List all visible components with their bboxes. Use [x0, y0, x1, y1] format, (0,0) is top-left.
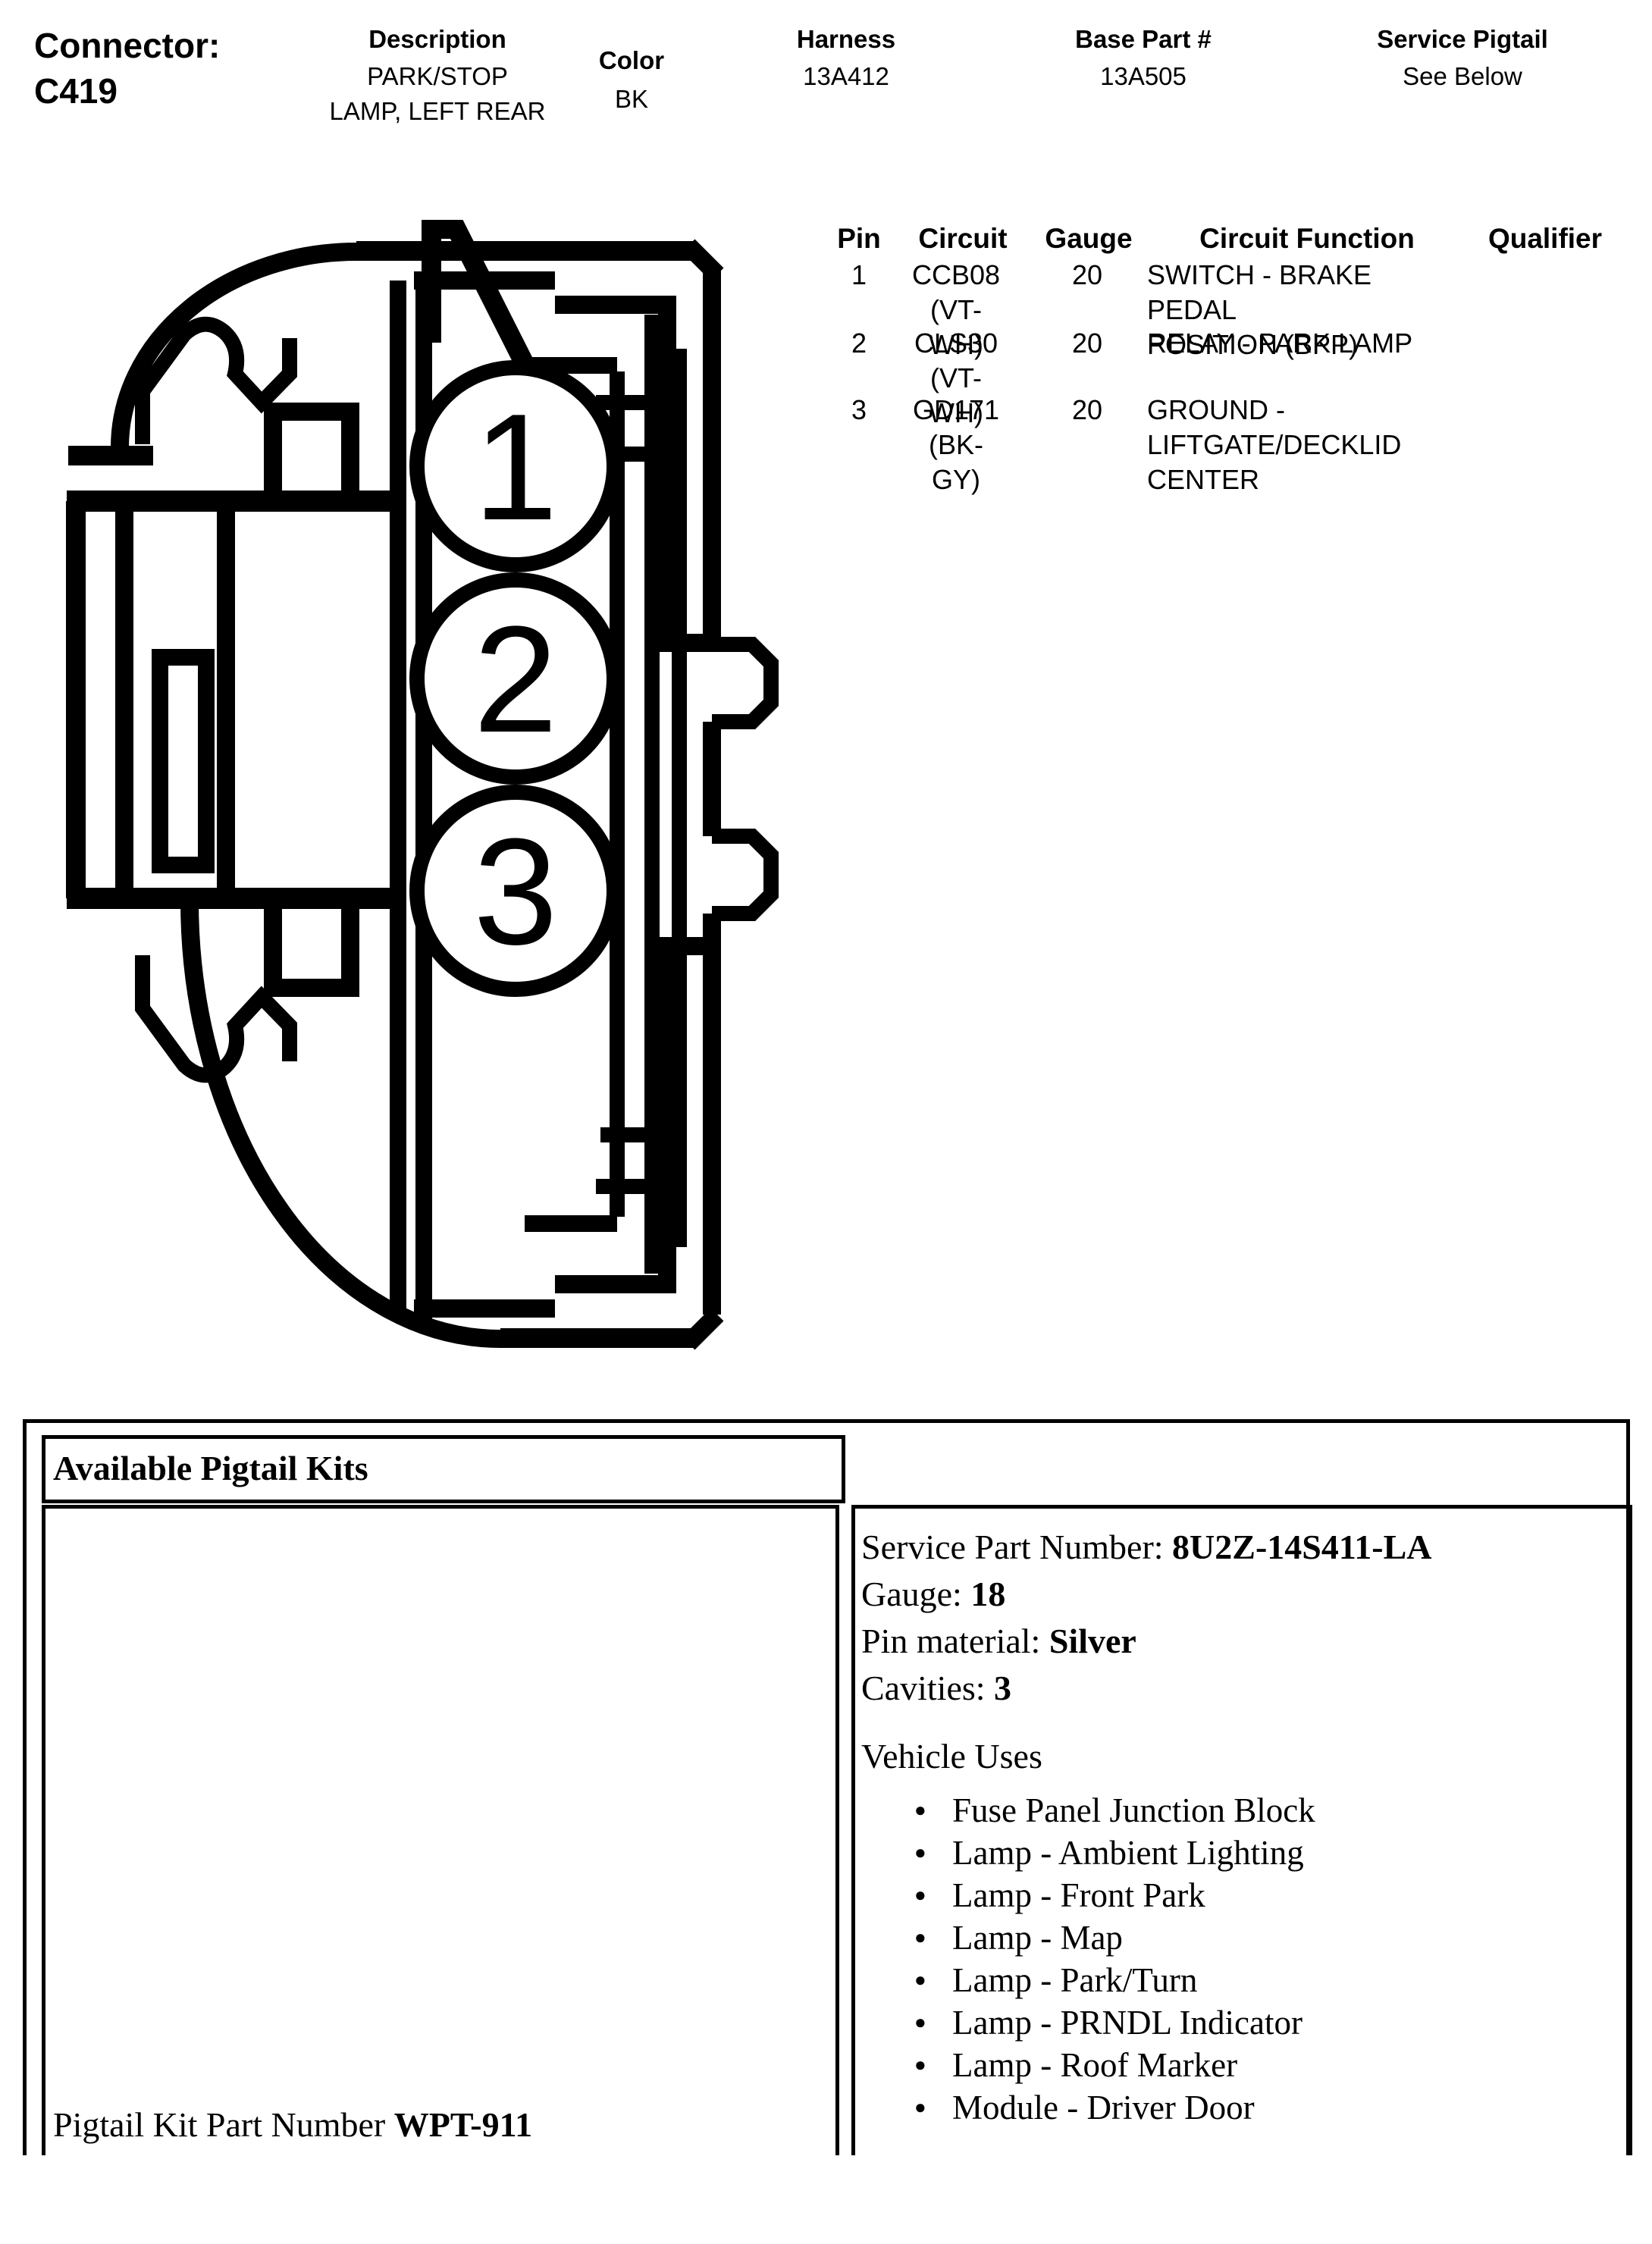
base-slot — [160, 657, 206, 865]
vehicle-uses-list: Fuse Panel Junction BlockLamp - Ambient … — [855, 1789, 1621, 2129]
pigtail-kit-part-number: WPT-911 — [394, 2105, 532, 2144]
connector-id: C419 — [34, 68, 220, 114]
pin-table-header-gauge: Gauge — [1043, 221, 1134, 256]
pin-table-header-circuit: Circuit — [902, 221, 1023, 256]
inner-hook-bottom — [555, 946, 712, 1284]
col-value-description: PARK/STOP LAMP, LEFT REAR — [301, 59, 574, 129]
col-value-service-pigtail: See Below — [1334, 59, 1591, 94]
vehicle-use-item: Lamp - Map — [855, 1916, 1621, 1959]
service-part-details: Service Part Number: 8U2Z-14S411-LA Gaug… — [861, 1524, 1619, 1712]
col-label-harness: Harness — [732, 24, 960, 55]
pin-table-header-function: Circuit Function — [1178, 221, 1436, 256]
circuit-cell: GD171 (BK- GY) — [893, 393, 1019, 497]
catalog-page: { "header": { "connector_label": "Connec… — [0, 0, 1652, 2244]
detail-service-part-number: Service Part Number: 8U2Z-14S411-LA — [861, 1524, 1619, 1571]
vehicle-uses-label: Vehicle Uses — [861, 1736, 1042, 1776]
pigtail-kit-part-label: Pigtail Kit Part Number — [53, 2105, 394, 2144]
vehicle-use-item: Module - Driver Door — [855, 2086, 1621, 2129]
service-part-cell: Service Part Number: 8U2Z-14S411-LA Gaug… — [851, 1505, 1632, 2155]
pigtail-kit-part-line: Pigtail Kit Part Number WPT-911 — [53, 2105, 532, 2145]
pigtail-kits-title: Available Pigtail Kits — [45, 1439, 842, 1498]
detail-value: 8U2Z-14S411-LA — [1172, 1528, 1431, 1566]
vehicle-use-item: Lamp - PRNDL Indicator — [855, 2001, 1621, 2044]
col-label-service-pigtail: Service Pigtail — [1334, 24, 1591, 55]
detail-value: 18 — [970, 1575, 1005, 1613]
pin-cavity-label-3: 3 — [473, 807, 557, 976]
vehicle-use-item: Lamp - Front Park — [855, 1874, 1621, 1916]
pin-table-header-pin: Pin — [829, 221, 889, 256]
gauge-cell: 20 — [1057, 326, 1118, 361]
detail-cavities: Cavities: 3 — [861, 1665, 1619, 1712]
col-label-description: Description — [301, 24, 574, 55]
gauge-cell: 20 — [1057, 258, 1118, 293]
connector-label: Connector: — [34, 23, 220, 68]
pin-cavity-label-1: 1 — [473, 383, 557, 552]
vehicle-use-item: Fuse Panel Junction Block — [855, 1789, 1621, 1832]
circuit-function-cell: GROUND - LIFTGATE/DECKLID CENTER — [1147, 393, 1435, 497]
pin-number-cell: 1 — [836, 258, 882, 293]
detail-value: Silver — [1049, 1622, 1136, 1660]
col-label-base-part: Base Part # — [1030, 24, 1257, 55]
pin-cavity-label-2: 2 — [473, 595, 557, 764]
detail-value: 3 — [994, 1669, 1011, 1707]
pin-cavities: 1 2 3 — [417, 368, 614, 989]
pigtail-kits-header-box: Available Pigtail Kits — [42, 1435, 845, 1503]
pin-number-cell: 2 — [836, 326, 882, 361]
col-value-harness: 13A412 — [732, 59, 960, 94]
pigtail-kit-cell: Pigtail Kit Part Number WPT-911 — [42, 1505, 839, 2155]
connector-title: Connector: C419 — [34, 23, 220, 114]
lock-tab-2 — [712, 836, 771, 914]
gauge-cell: 20 — [1057, 393, 1118, 428]
circuit-function-cell: RELAY - PARK LAMP — [1147, 326, 1435, 361]
vehicle-use-item: Lamp - Park/Turn — [855, 1959, 1621, 2001]
detail-label: Gauge: — [861, 1575, 970, 1613]
detail-gauge: Gauge: 18 — [861, 1571, 1619, 1618]
col-value-color: BK — [556, 82, 707, 117]
col-value-base-part: 13A505 — [1030, 59, 1257, 94]
vehicle-use-item: Lamp - Roof Marker — [855, 2044, 1621, 2086]
detail-label: Service Part Number: — [861, 1528, 1172, 1566]
connector-face-diagram: 1 2 3 — [53, 220, 819, 1372]
vehicle-use-item: Lamp - Ambient Lighting — [855, 1832, 1621, 1874]
detail-pin-material: Pin material: Silver — [861, 1618, 1619, 1665]
lock-tab-1 — [712, 644, 771, 722]
bottom-right-chamfer — [688, 1315, 717, 1343]
col-label-color: Color — [556, 45, 707, 76]
pin-table-header-qualifier: Qualifier — [1477, 221, 1613, 256]
detail-label: Pin material: — [861, 1622, 1049, 1660]
detail-label: Cavities: — [861, 1669, 994, 1707]
pin-number-cell: 3 — [836, 393, 882, 428]
